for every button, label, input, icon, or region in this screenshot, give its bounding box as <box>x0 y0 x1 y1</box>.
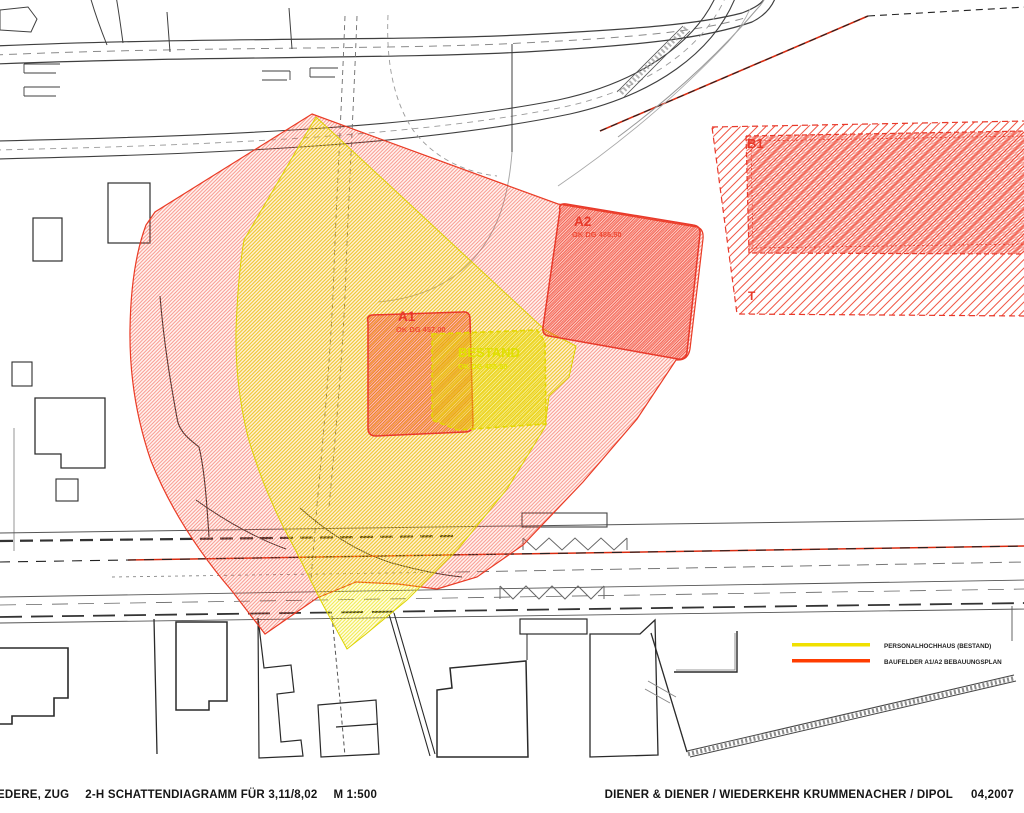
sheet-title: 2-H SCHATTENDIAGRAMM FÜR 3,11/8,02 <box>85 789 317 801</box>
building-outline <box>258 618 303 758</box>
label-a1: A1 <box>398 309 416 324</box>
label-a2-elevation: OK DG 486,50 <box>572 230 622 239</box>
label-t: T <box>748 289 756 303</box>
b1-inner-field <box>746 131 1024 254</box>
top-road-band <box>0 0 776 159</box>
building-outline <box>35 398 105 468</box>
project-name: EDERE, ZUG <box>0 789 69 801</box>
title-block-right: DIENER & DIENER / WIEDERKEHR KRUMMENACHE… <box>605 789 1014 801</box>
shadow-diagram-sheet: A1 OK DG 457,00 A2 OK DG 486,50 BESTAND … <box>0 0 1024 813</box>
date: 04,2007 <box>971 789 1014 801</box>
legend: PERSONALHOCHHAUS (BESTAND) BAUFELDER A1/… <box>792 643 1002 666</box>
label-a1-elevation: OK DG 457,00 <box>396 325 446 334</box>
building-outline <box>590 620 658 757</box>
label-b1: B1 <box>747 136 764 151</box>
building-outline <box>0 648 68 724</box>
lane-diagonal <box>389 613 435 756</box>
title-block-left: EDERE, ZUG 2-H SCHATTENDIAGRAMM FÜR 3,11… <box>0 789 377 801</box>
building-outline <box>437 661 528 757</box>
street-edge <box>0 603 1024 617</box>
building-outline <box>318 700 379 757</box>
architects: DIENER & DIENER / WIEDERKEHR KRUMMENACHE… <box>605 789 953 801</box>
building-outline <box>176 622 227 710</box>
label-bestand-elevation: OK DG 455,50 <box>458 362 508 371</box>
label-bestand: BESTAND <box>458 345 520 360</box>
building-outline <box>33 218 62 261</box>
legend-swatch-yellow <box>792 643 870 647</box>
legend-swatch-red <box>792 659 870 663</box>
scale-note: M 1:500 <box>333 789 377 801</box>
track-zigzag <box>523 538 627 550</box>
baufeld-a2-building <box>543 204 700 359</box>
legend-label-baufelder: BAUFELDER A1/A2 BEBAUUNGSPLAN <box>884 659 1002 666</box>
legend-label-bestand: PERSONALHOCHHAUS (BESTAND) <box>884 643 991 650</box>
label-a2: A2 <box>574 214 591 229</box>
plan-drawing: A1 OK DG 457,00 A2 OK DG 486,50 BESTAND … <box>0 0 1024 813</box>
embankment-hatch <box>688 678 1015 754</box>
south-buildings <box>0 606 1016 758</box>
